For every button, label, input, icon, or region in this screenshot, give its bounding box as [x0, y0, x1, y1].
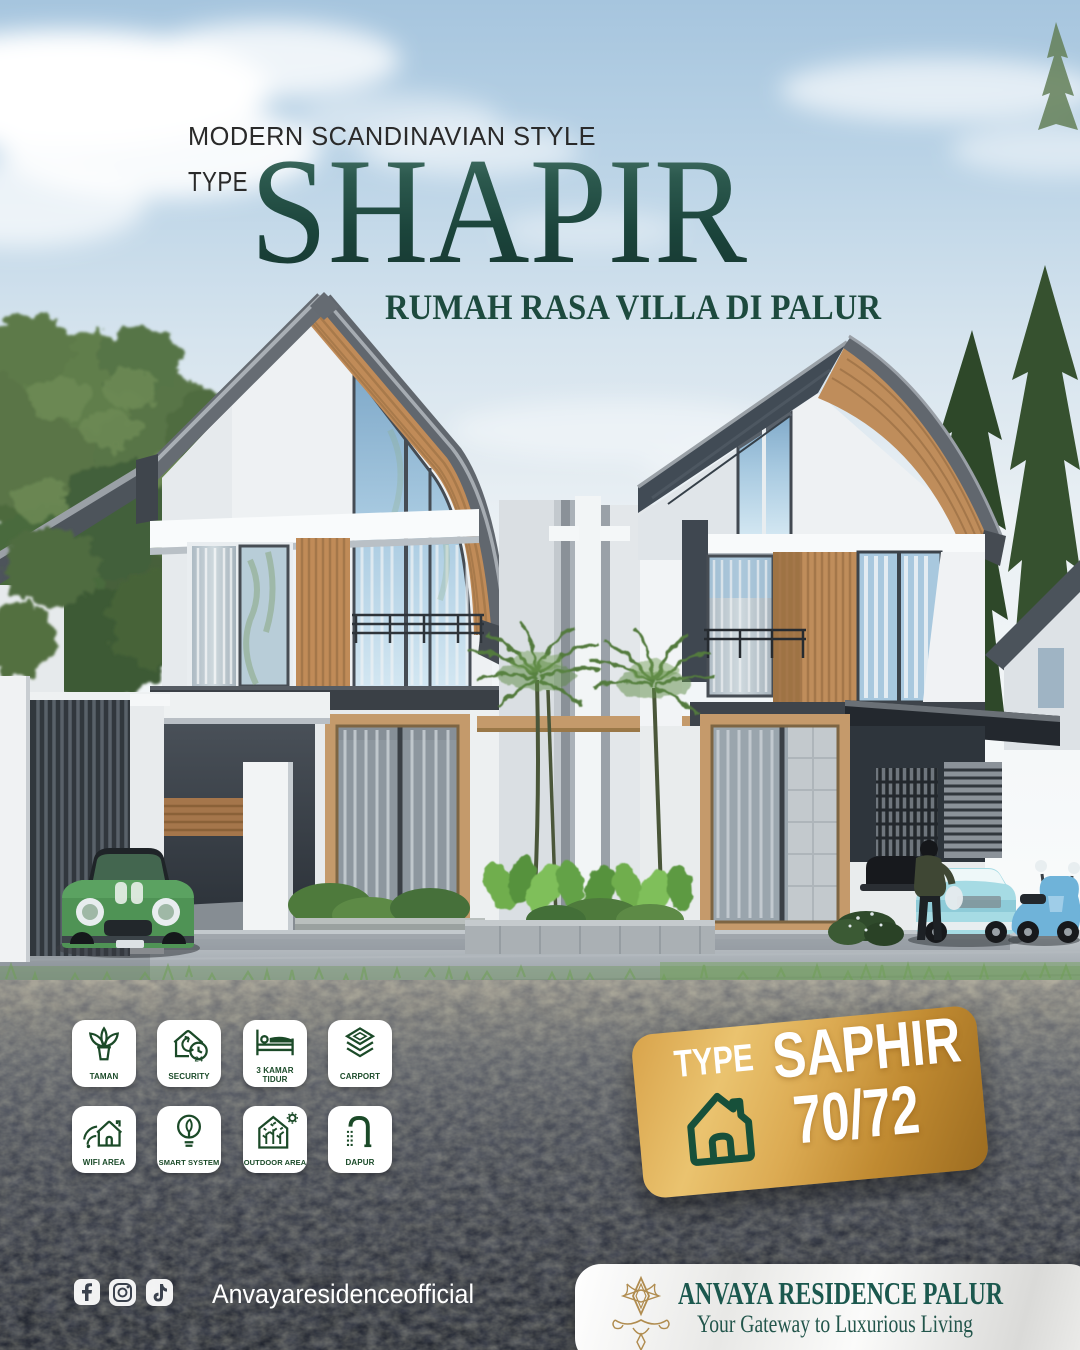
svg-text:ANVAYA RESIDENCE PALUR: ANVAYA RESIDENCE PALUR — [678, 1275, 1004, 1311]
svg-text:SHAPIR: SHAPIR — [250, 127, 748, 295]
svg-text:Anvayaresidenceofficial: Anvayaresidenceofficial — [212, 1279, 474, 1309]
svg-text:Your Gateway to Luxurious Livi: Your Gateway to Luxurious Living — [697, 1311, 973, 1338]
svg-text:24: 24 — [195, 1055, 204, 1063]
svg-text:TYPE: TYPE — [188, 166, 248, 197]
svg-text:RUMAH RASA VILLA DI PALUR: RUMAH RASA VILLA DI PALUR — [385, 287, 882, 327]
